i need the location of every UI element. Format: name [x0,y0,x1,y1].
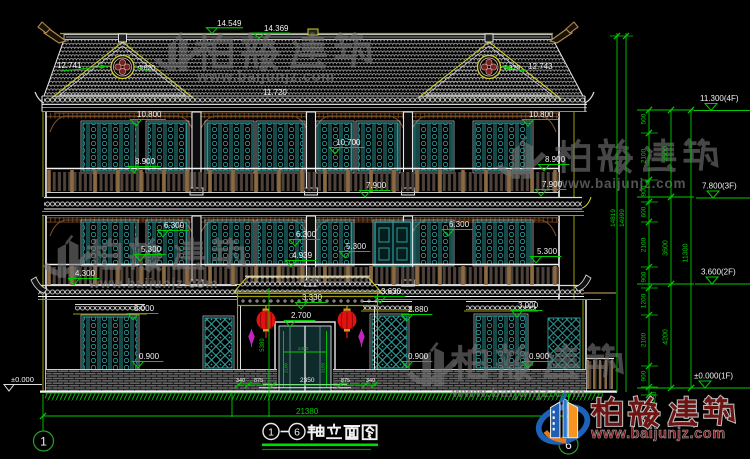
svg-text:3.000: 3.000 [518,301,539,310]
svg-text:5389: 5389 [260,338,266,352]
svg-text:4.300: 4.300 [75,269,96,278]
svg-text:4200: 4200 [663,329,670,345]
svg-text:6: 6 [294,427,300,439]
svg-text:3500: 3500 [663,146,670,162]
svg-text:±0.000: ±0.000 [11,375,34,384]
svg-text:340: 340 [236,378,245,384]
svg-text:7.800(3F): 7.800(3F) [702,182,737,191]
svg-text:3.600(2F): 3.600(2F) [701,268,736,277]
svg-text:900: 900 [641,370,648,381]
svg-text:21380: 21380 [296,407,319,416]
svg-text:3.630: 3.630 [381,287,402,296]
svg-text:14.549: 14.549 [217,19,242,28]
svg-text:14819: 14819 [610,209,617,227]
svg-text:6.300: 6.300 [296,230,317,239]
svg-text:6.300: 6.300 [449,220,470,229]
svg-text:340: 340 [366,378,375,384]
svg-text:11.300(4F): 11.300(4F) [700,94,739,103]
svg-text:500: 500 [641,113,648,124]
svg-text:11.720: 11.720 [263,88,287,97]
svg-text:2100: 2100 [284,362,289,373]
svg-text:1200: 1200 [641,293,648,308]
svg-text:14.369: 14.369 [264,24,289,33]
svg-text:10.700: 10.700 [336,138,361,147]
svg-text:12.741: 12.741 [57,61,82,70]
svg-text:0.900: 0.900 [408,352,429,361]
svg-text:875: 875 [254,378,263,384]
svg-text:4.939: 4.939 [292,251,313,260]
svg-text:1: 1 [268,427,274,439]
svg-text:900: 900 [641,185,648,196]
svg-text:14999: 14999 [619,209,626,227]
svg-text:www.baijunjz.com: www.baijunjz.com [451,384,586,400]
svg-text:5.300: 5.300 [141,245,162,254]
svg-text:10.800: 10.800 [529,110,554,119]
svg-text:2150: 2150 [321,362,326,373]
svg-text:7.900: 7.900 [366,181,387,190]
svg-text:2350: 2350 [300,377,315,384]
svg-text:0.900: 0.900 [139,352,160,361]
svg-text:2.700: 2.700 [291,311,312,320]
svg-text:2100: 2100 [641,237,648,252]
svg-text:1: 1 [40,435,47,449]
svg-text:6.300: 6.300 [164,221,185,230]
svg-text:3.330: 3.330 [302,293,323,302]
svg-text:12.743: 12.743 [528,62,553,71]
svg-text:8.900: 8.900 [545,155,566,164]
svg-text:www.baijunjz.com: www.baijunjz.com [590,426,726,442]
svg-text:3.000: 3.000 [134,304,155,313]
svg-text:3600: 3600 [663,240,670,256]
svg-text:5.300: 5.300 [346,242,367,251]
svg-text:5.300: 5.300 [537,247,558,256]
svg-text:0.900: 0.900 [529,352,550,361]
svg-text:www.baijunjz.com: www.baijunjz.com [88,276,218,291]
svg-text:11300: 11300 [683,243,690,262]
svg-text:www.baijunjz.com: www.baijunjz.com [556,176,686,191]
svg-text:2100: 2100 [641,332,648,347]
svg-text:875: 875 [341,378,350,384]
svg-text:600: 600 [641,206,648,217]
svg-text:2460: 2460 [298,346,309,351]
svg-text:www.baijunjz.com: www.baijunjz.com [196,69,335,85]
svg-text:2.880: 2.880 [408,305,429,314]
svg-text:8.900: 8.900 [135,157,156,166]
svg-text:7.900: 7.900 [542,180,563,189]
svg-text:900: 900 [641,271,648,282]
svg-text:±0.000(1F): ±0.000(1F) [694,372,733,381]
svg-text:2100: 2100 [641,148,648,163]
svg-text:10.800: 10.800 [137,110,162,119]
